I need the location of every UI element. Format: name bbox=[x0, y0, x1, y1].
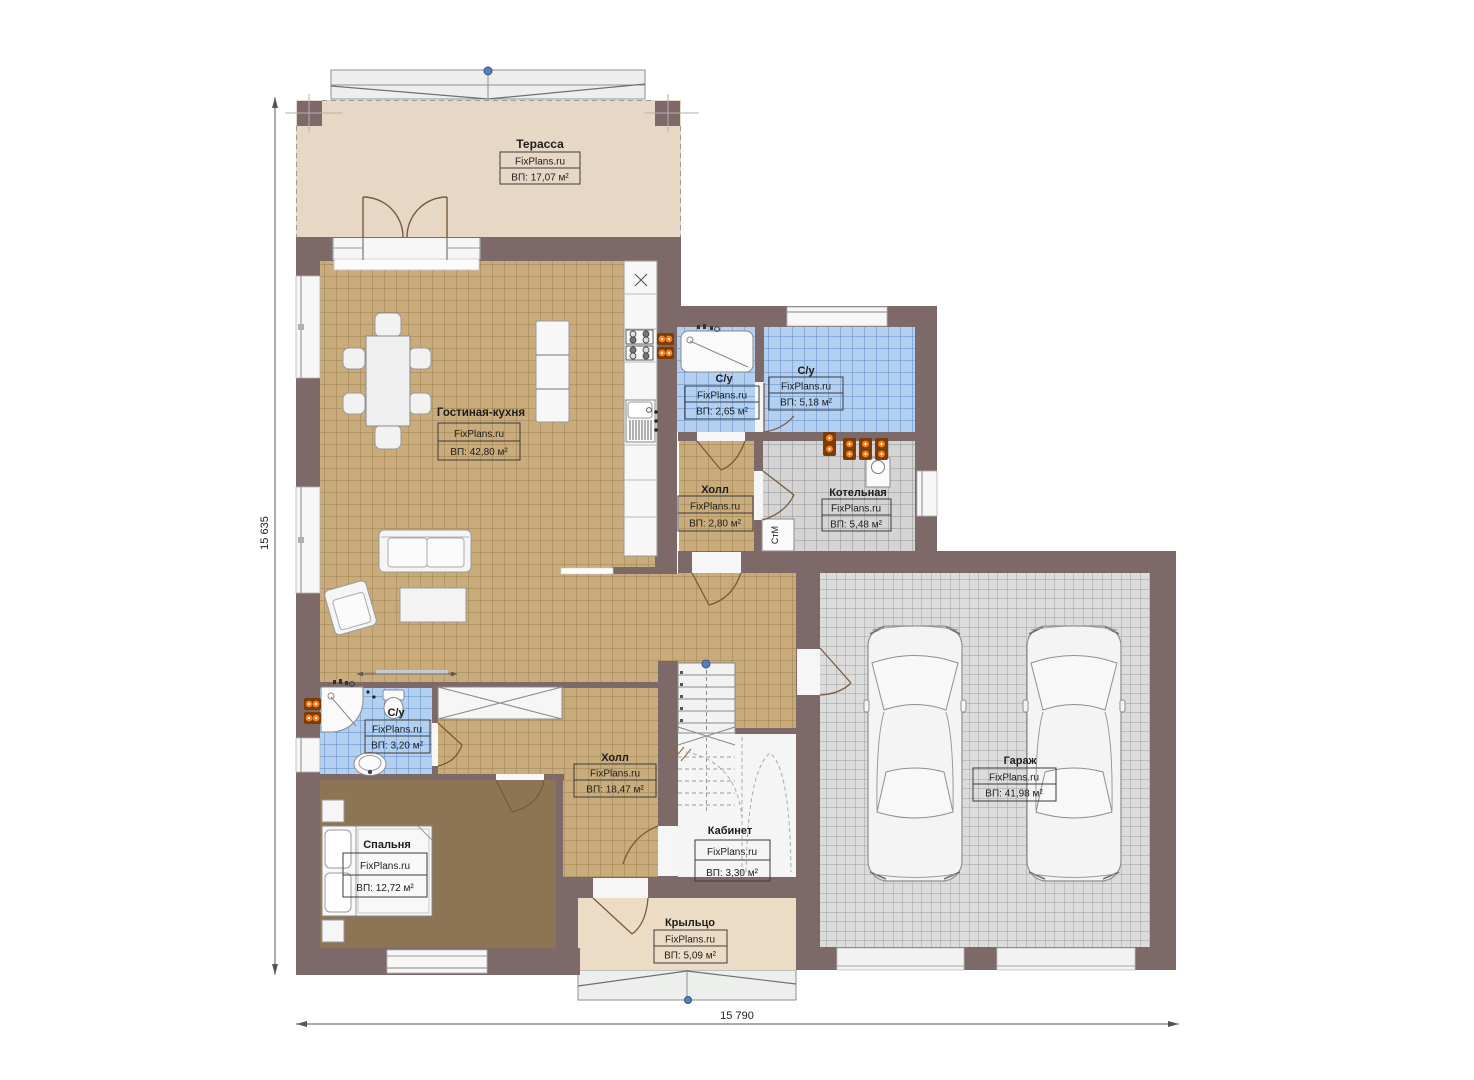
svg-text:ВП: 2,65 м²: ВП: 2,65 м² bbox=[696, 407, 749, 418]
svg-text:Гараж: Гараж bbox=[1004, 755, 1037, 767]
svg-text:FixPlans.ru: FixPlans.ru bbox=[590, 769, 640, 780]
svg-text:FixPlans.ru: FixPlans.ru bbox=[515, 157, 565, 168]
svg-text:FixPlans.ru: FixPlans.ru bbox=[454, 429, 504, 440]
svg-text:С/у: С/у bbox=[797, 365, 815, 377]
svg-text:Гостиная-кухня: Гостиная-кухня bbox=[437, 407, 525, 419]
svg-text:ВП: 5,48 м²: ВП: 5,48 м² bbox=[830, 520, 883, 531]
svg-text:FixPlans.ru: FixPlans.ru bbox=[707, 847, 757, 858]
svg-text:Спальня: Спальня bbox=[363, 839, 411, 851]
svg-text:ВП: 5,09 м²: ВП: 5,09 м² bbox=[664, 951, 717, 962]
svg-text:Холл: Холл bbox=[601, 752, 629, 764]
svg-text:ВП: 12,72 м²: ВП: 12,72 м² bbox=[356, 883, 414, 894]
svg-text:ВП: 5,18 м²: ВП: 5,18 м² bbox=[780, 398, 833, 409]
svg-text:Кабинет: Кабинет bbox=[708, 825, 753, 837]
svg-text:FixPlans.ru: FixPlans.ru bbox=[360, 861, 410, 872]
svg-text:Крыльцо: Крыльцо bbox=[665, 917, 715, 929]
svg-text:FixPlans.ru: FixPlans.ru bbox=[665, 935, 715, 946]
svg-text:FixPlans.ru: FixPlans.ru bbox=[781, 382, 831, 393]
svg-text:СтМ: СтМ bbox=[770, 526, 780, 544]
svg-text:ВП: 3,20 м²: ВП: 3,20 м² bbox=[371, 741, 424, 752]
svg-text:15 790: 15 790 bbox=[720, 1010, 754, 1022]
svg-text:С/у: С/у bbox=[715, 373, 733, 385]
svg-text:FixPlans.ru: FixPlans.ru bbox=[690, 502, 740, 513]
svg-text:ВП: 3,30 м²: ВП: 3,30 м² bbox=[706, 868, 759, 879]
svg-text:FixPlans.ru: FixPlans.ru bbox=[697, 391, 747, 402]
svg-text:Холл: Холл bbox=[701, 484, 729, 496]
svg-text:Терасса: Терасса bbox=[516, 137, 564, 151]
svg-text:15 635: 15 635 bbox=[259, 516, 271, 550]
svg-text:Котельная: Котельная bbox=[829, 487, 887, 499]
svg-text:ВП: 42,80 м²: ВП: 42,80 м² bbox=[450, 447, 508, 458]
svg-text:С/у: С/у bbox=[387, 707, 405, 719]
svg-text:ВП: 41,98 м²: ВП: 41,98 м² bbox=[985, 789, 1043, 800]
svg-text:FixPlans.ru: FixPlans.ru bbox=[372, 725, 422, 736]
svg-text:ВП: 18,47 м²: ВП: 18,47 м² bbox=[586, 785, 644, 796]
svg-text:FixPlans.ru: FixPlans.ru bbox=[831, 504, 881, 515]
svg-text:FixPlans.ru: FixPlans.ru bbox=[989, 773, 1039, 784]
svg-text:ВП: 2,80 м²: ВП: 2,80 м² bbox=[689, 519, 742, 530]
svg-text:ВП: 17,07 м²: ВП: 17,07 м² bbox=[511, 173, 569, 184]
